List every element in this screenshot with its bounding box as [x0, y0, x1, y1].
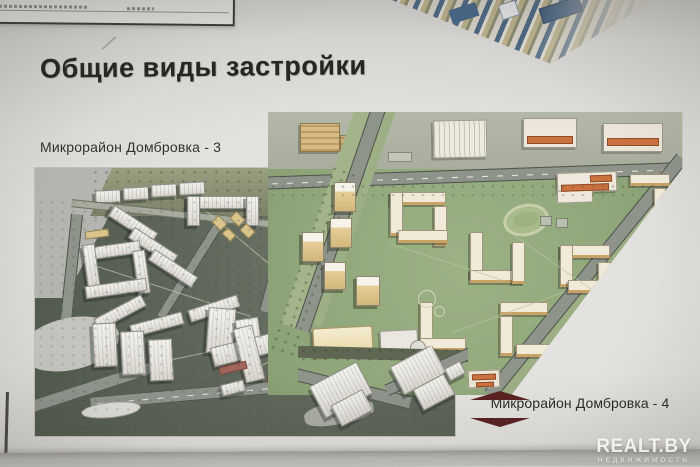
hangar-building: [433, 120, 488, 159]
adjacent-sheet-top: [0, 0, 235, 26]
realt-by-watermark: REALT.BY НЕДВИЖИМОСТЬ: [591, 437, 697, 464]
tree-row: [524, 165, 695, 390]
tower: [356, 276, 380, 306]
tower: [330, 218, 352, 248]
residential-block: [568, 280, 616, 293]
rendering-4-caption: Микрорайон Домбровка - 4: [470, 391, 690, 411]
residential-block: [516, 344, 556, 357]
retaining-wall: [151, 183, 178, 197]
tower: [324, 262, 346, 290]
sheet-fade: [392, 0, 698, 64]
orange-roof: [476, 382, 494, 388]
adjacent-sheet-corner-rendering: [392, 0, 698, 64]
scratch-mark: [102, 36, 117, 50]
poster-title: Общие виды застройки: [40, 50, 367, 84]
retaining-wall: [179, 181, 206, 195]
watermark-tagline: НЕДВИЖИМОСТЬ: [591, 457, 697, 464]
industrial-building: [388, 152, 412, 162]
screenshot-root: Общие виды застройки Микрорайон Домбровк…: [0, 0, 700, 467]
playground: [418, 290, 436, 308]
orange-roof: [607, 138, 659, 146]
watermark-brand: REALT.BY: [591, 437, 697, 457]
tree-texture: [268, 182, 688, 196]
residential-block: [500, 316, 513, 356]
industrial-building: [300, 123, 340, 152]
orange-roof: [527, 136, 573, 144]
tower: [302, 232, 324, 262]
sports-court: [556, 218, 568, 228]
fine-print-line: [0, 5, 89, 9]
foreground-white-buildings: [298, 346, 468, 434]
fine-print-line: [127, 7, 154, 10]
residential-block: [398, 230, 448, 243]
rendering-3-label: Микрорайон Домбровка - 3: [40, 139, 221, 155]
sports-court: [540, 216, 552, 226]
residential-block: [598, 262, 611, 302]
diamond-down-icon: [470, 418, 530, 427]
orange-roof: [472, 374, 496, 381]
footpath: [391, 243, 505, 281]
residential-block: [512, 242, 525, 284]
playground: [434, 306, 445, 317]
